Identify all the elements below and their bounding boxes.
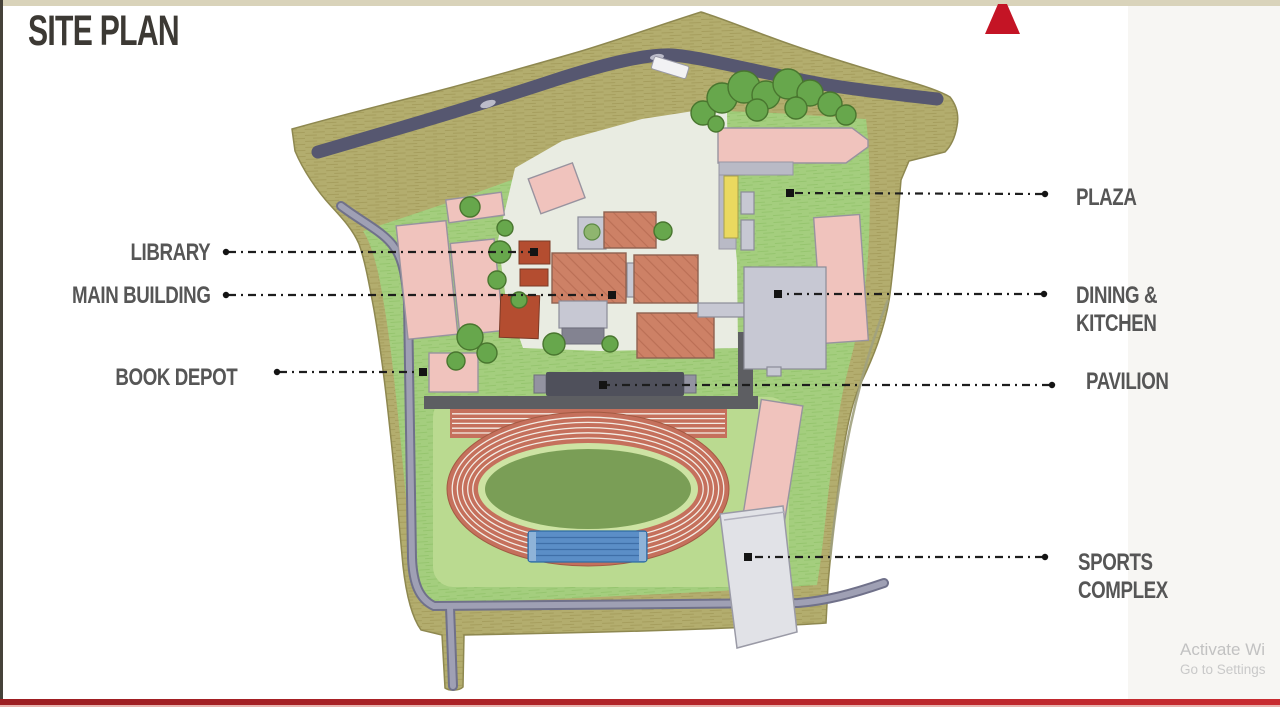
tree [497,220,513,236]
dining-kitchen-building [744,267,826,376]
small-gray-building [741,220,754,250]
tree [447,352,465,370]
small-gray-building [741,192,754,214]
tree [543,333,565,355]
tree [477,343,497,363]
running-track [447,409,729,566]
label-main-building: MAIN BUILDING [0,282,210,309]
label-dining-kitchen: DINING & KITCHEN [1076,282,1180,338]
slide-left-edge [0,0,3,707]
yellow-canopy-building [724,176,738,238]
track-infield [485,449,691,529]
label-sports-complex: SPORTS COMPLEX [1078,549,1193,605]
tree [488,271,506,289]
swimming-pool [528,531,647,562]
tree [654,222,672,240]
label-plaza: PLAZA [1076,184,1154,211]
label-pavilion: PAVILION [1086,368,1192,395]
label-book-depot: BOOK DEPOT [40,364,237,391]
page-title: SITE PLAN [28,10,244,53]
activation-watermark-line1: Activate Wi [1180,640,1265,660]
tree [460,197,480,217]
activation-watermark-line2[interactable]: Go to Settings [1180,662,1266,677]
slide: SITE PLAN LIBRARY MAIN BUILDING BOOK DEP… [0,0,1280,707]
north-arrow-icon [985,4,1020,35]
page-title-text: SITE PLAN [28,10,179,53]
label-library: LIBRARY [20,239,210,266]
slide-top-strip [0,0,1280,6]
plaza-building [718,128,868,163]
plaza-path [719,162,793,175]
tree [602,336,618,352]
